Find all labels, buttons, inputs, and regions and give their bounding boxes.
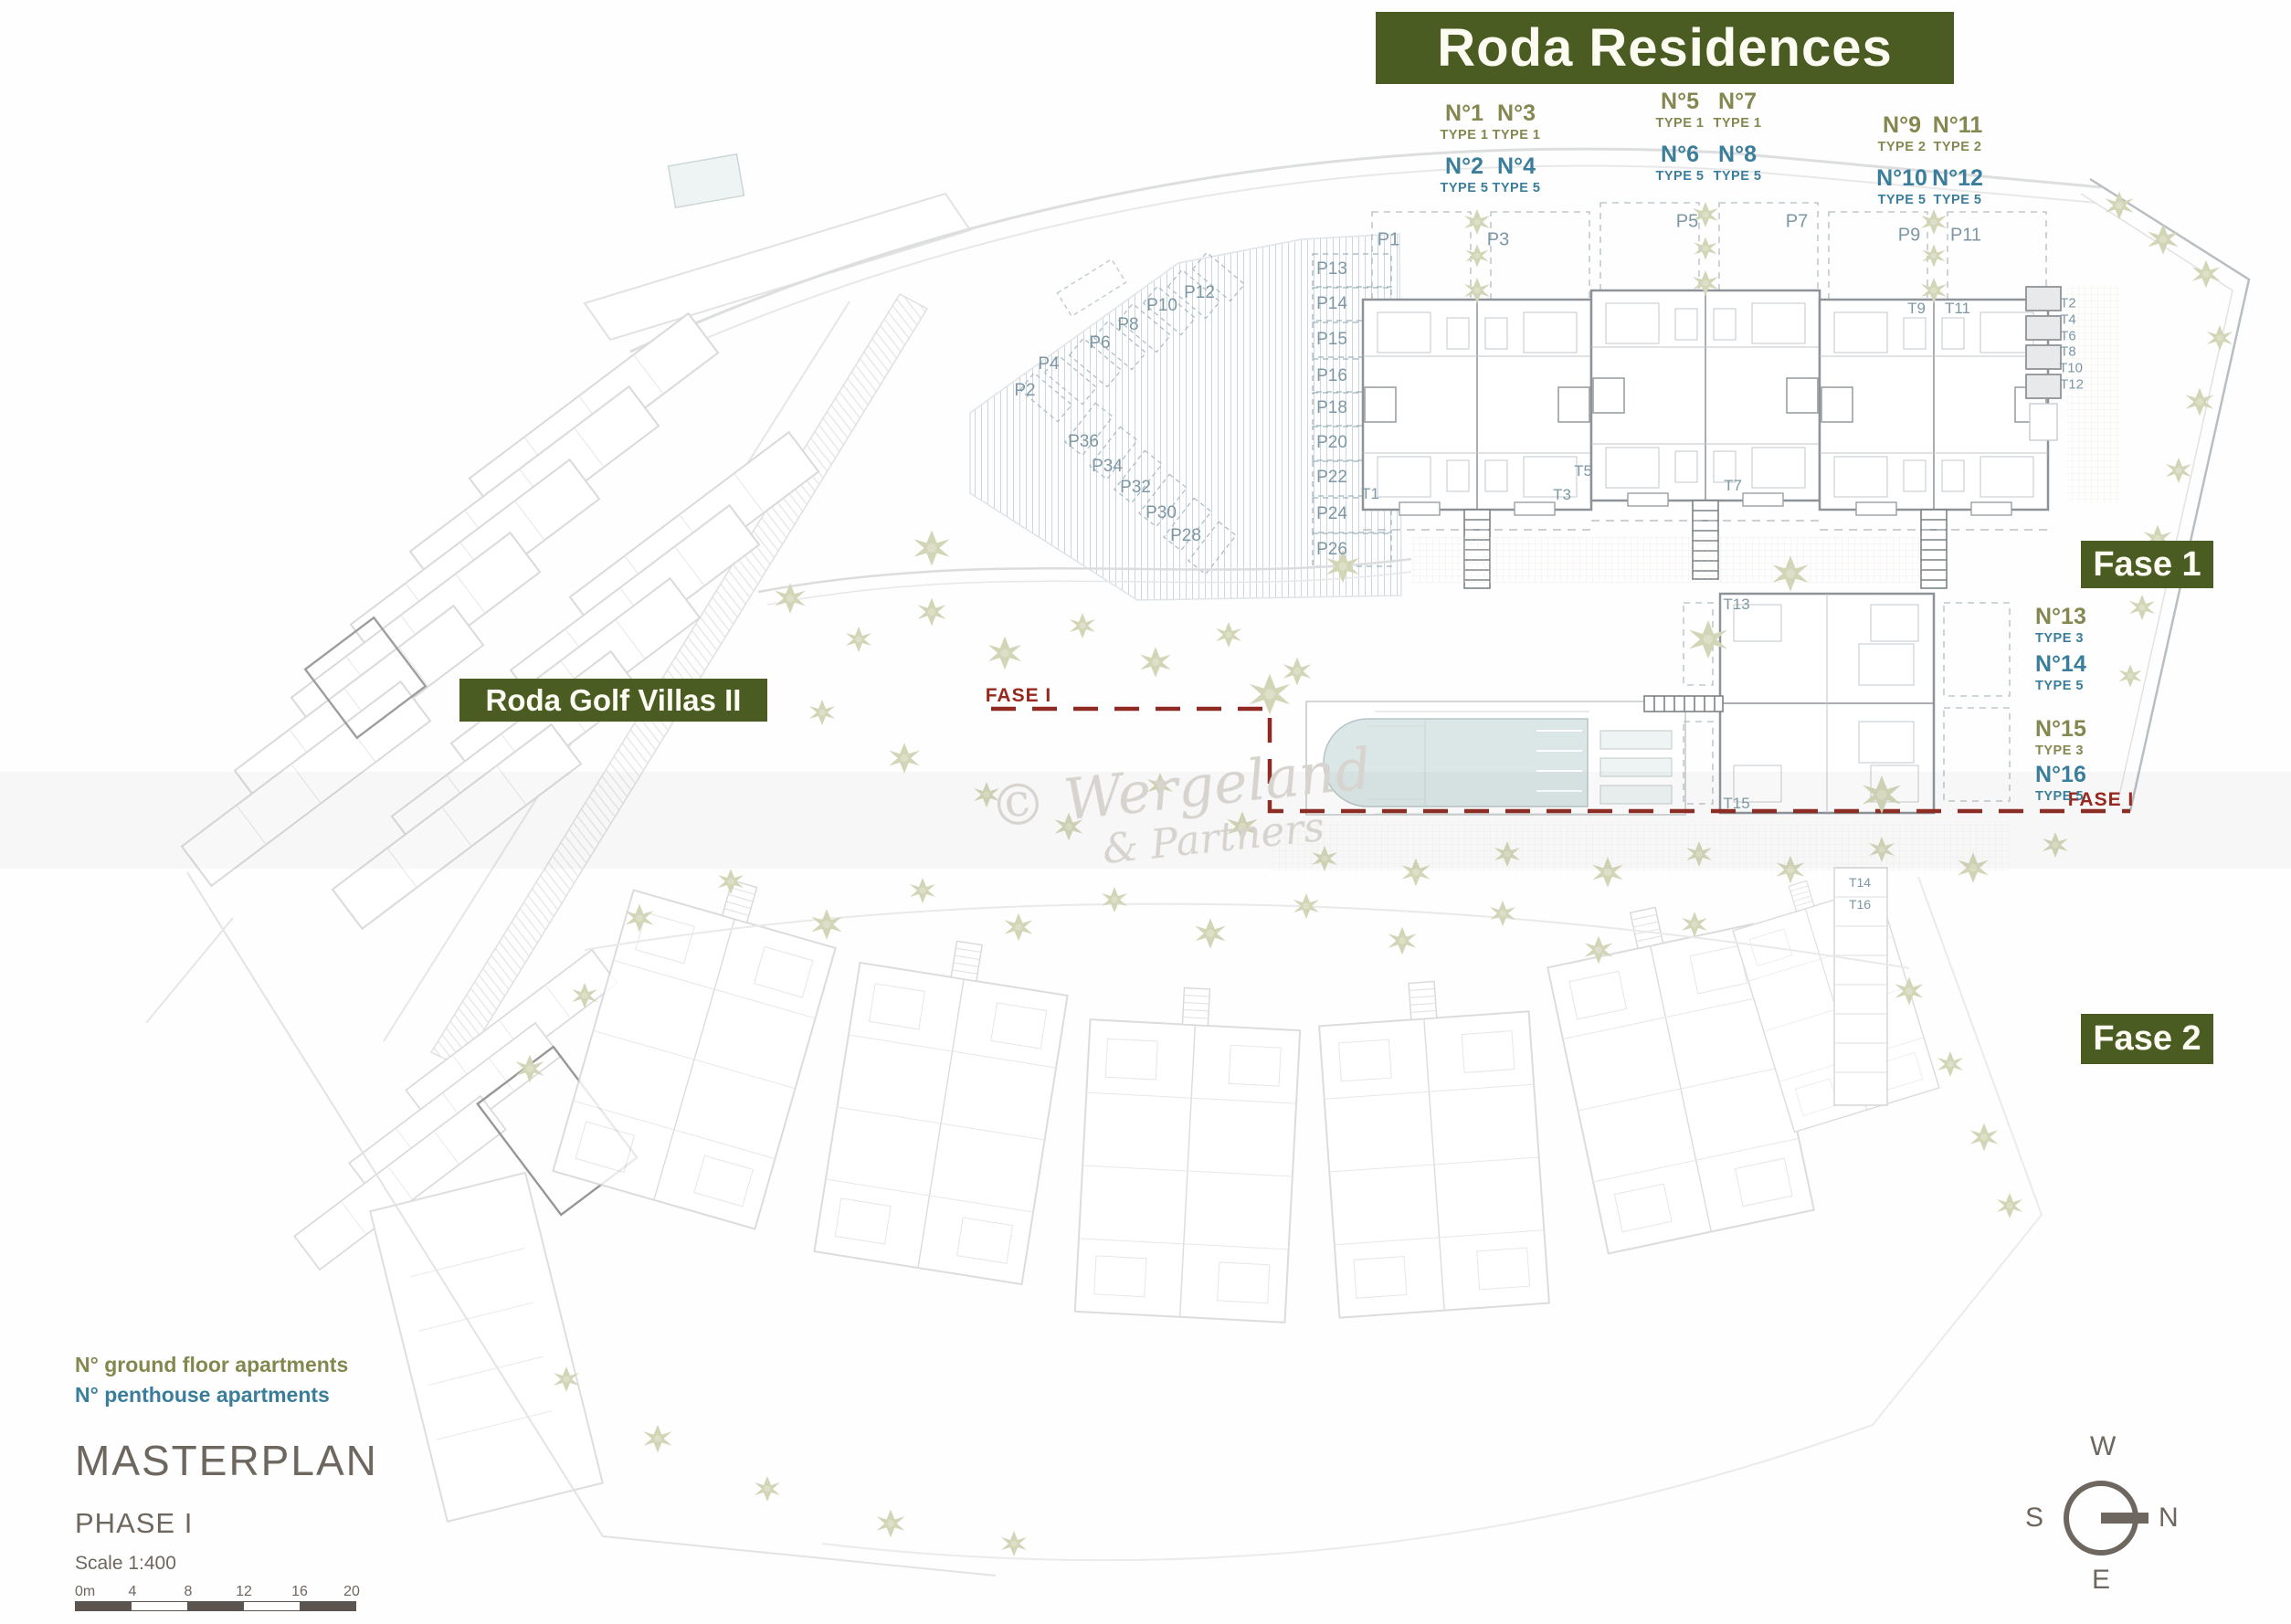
plot-label: P24 (1316, 504, 1347, 524)
legend-penthouse: N° penthouse apartments (75, 1380, 348, 1410)
villas-banner: Roda Golf Villas II (459, 679, 767, 722)
fase-boundary-label-west: FASE I (986, 685, 1052, 707)
plot-label: T14 (1849, 875, 1871, 890)
unit-number: N°3 (1497, 102, 1536, 125)
unit-type: TYPE 5 (1934, 194, 1982, 207)
plot-label: P4 (1038, 354, 1059, 374)
scan-shade-band (0, 772, 2291, 869)
plot-label: T15 (1723, 795, 1749, 813)
unit-number: N°4 (1497, 155, 1536, 178)
plot-label: T3 (1553, 486, 1571, 504)
unit-label-8: N°8TYPE 5 (1714, 143, 1762, 184)
plot-label: P5 (1676, 212, 1698, 233)
masterplan-scale: Scale 1:400 (75, 1553, 378, 1575)
unit-label-2: N°2TYPE 5 (1441, 155, 1489, 195)
plot-label: P18 (1316, 398, 1347, 418)
plot-label: P34 (1092, 457, 1123, 477)
plot-label: P28 (1170, 526, 1201, 546)
compass: W N E S (2014, 1439, 2197, 1603)
compass-e: E (2092, 1565, 2110, 1596)
unit-type: TYPE 5 (1878, 194, 1927, 207)
masterplan-phase: PHASE I (75, 1507, 378, 1540)
unit-type: TYPE 2 (1934, 141, 1982, 154)
plot-label: T2 (2060, 296, 2076, 311)
unit-label-7: N°7TYPE 1 (1714, 90, 1762, 131)
scale-tick: 4 (129, 1584, 137, 1600)
plot-label: T8 (2060, 344, 2076, 360)
plot-label: P22 (1316, 468, 1347, 488)
plot-label: P30 (1145, 503, 1177, 523)
plot-label: P26 (1316, 540, 1347, 560)
unit-label-5: N°5TYPE 1 (1656, 90, 1705, 131)
unit-type: TYPE 1 (1493, 129, 1541, 142)
unit-type: TYPE 5 (2035, 790, 2084, 804)
unit-label-13: N°13TYPE 3 (2035, 606, 2086, 646)
plot-label: T10 (2059, 361, 2083, 376)
plot-label: T13 (1723, 596, 1749, 614)
plot-label: T9 (1907, 300, 1926, 318)
legend-ground-floor: N° ground floor apartments (75, 1350, 348, 1380)
plot-label: P20 (1316, 433, 1347, 453)
compass-s: S (2025, 1503, 2043, 1534)
masterplan-canvas: Roda Residences Roda Golf Villas II Fase… (0, 0, 2291, 1624)
unit-number: N°6 (1661, 143, 1699, 166)
scale-bar: 0m 4 8 12 16 20 (75, 1584, 358, 1611)
unit-number: N°8 (1718, 143, 1757, 166)
unit-number: N°16 (2035, 764, 2086, 786)
unit-number: N°10 (1876, 167, 1927, 190)
unit-label-12: N°12TYPE 5 (1932, 167, 1983, 207)
plot-label: T6 (2060, 329, 2076, 344)
plot-label: T7 (1724, 477, 1742, 495)
scale-tick: 16 (291, 1584, 308, 1600)
unit-type: TYPE 2 (1878, 141, 1927, 154)
plot-label: P1 (1378, 230, 1399, 251)
compass-w: W (2090, 1431, 2116, 1462)
plot-label: T5 (1574, 462, 1592, 480)
unit-label-10: N°10TYPE 5 (1876, 167, 1927, 207)
scale-tick: 20 (343, 1584, 360, 1600)
plot-label: P36 (1068, 432, 1099, 452)
unit-label-15: N°15TYPE 3 (2035, 718, 2086, 758)
unit-label-1: N°1TYPE 1 (1441, 102, 1489, 142)
plot-label: P3 (1487, 230, 1509, 251)
plot-label: P12 (1184, 283, 1215, 303)
unit-number: N°12 (1932, 167, 1983, 190)
plot-label: T4 (2060, 312, 2076, 328)
legend: N° ground floor apartments N° penthouse … (75, 1350, 348, 1411)
plot-label: T16 (1849, 897, 1871, 912)
unit-number: N°2 (1445, 155, 1483, 178)
scale-tick: 0m (75, 1584, 95, 1600)
unit-label-4: N°4TYPE 5 (1493, 155, 1541, 195)
plot-label: P13 (1316, 259, 1347, 279)
plot-label: P32 (1120, 478, 1151, 498)
masterplan-block: MASTERPLAN PHASE I Scale 1:400 0m 4 8 12… (75, 1436, 378, 1611)
unit-type: TYPE 1 (1441, 129, 1489, 142)
unit-type: TYPE 5 (1656, 170, 1705, 184)
compass-n: N (2159, 1503, 2179, 1534)
unit-number: N°1 (1445, 102, 1483, 125)
unit-number: N°15 (2035, 718, 2086, 741)
fase2-badge: Fase 2 (2081, 1014, 2213, 1064)
unit-label-6: N°6TYPE 5 (1656, 143, 1705, 184)
plot-label: P10 (1146, 296, 1177, 316)
scale-tick: 12 (236, 1584, 252, 1600)
fase1-text: Fase 1 (2093, 545, 2201, 585)
plot-label: P7 (1786, 212, 1808, 233)
unit-type: TYPE 3 (2035, 744, 2084, 758)
unit-number: N°13 (2035, 606, 2086, 628)
plot-label: P14 (1316, 294, 1347, 314)
unit-number: N°14 (2035, 653, 2086, 676)
unit-type: TYPE 5 (1441, 182, 1489, 195)
plot-label: P16 (1316, 366, 1347, 386)
title-banner: Roda Residences (1376, 12, 1954, 84)
plot-label: P2 (1014, 381, 1035, 401)
fase2-buildings (553, 855, 2042, 1560)
plot-label: P15 (1316, 330, 1347, 350)
plot-label: P6 (1089, 333, 1110, 353)
unit-type: TYPE 1 (1656, 117, 1705, 131)
unit-number: N°7 (1718, 90, 1757, 113)
unit-label-9: N°9TYPE 2 (1878, 114, 1927, 154)
plot-label: T12 (2060, 377, 2084, 393)
scale-tick: 8 (185, 1584, 193, 1600)
unit-number: N°9 (1883, 114, 1921, 137)
unit-label-16: N°16TYPE 5 (2035, 764, 2086, 804)
masterplan-title: MASTERPLAN (75, 1436, 378, 1485)
scale-bar-segments (75, 1601, 356, 1611)
fase2-text: Fase 2 (2093, 1019, 2201, 1059)
unit-type: TYPE 1 (1714, 117, 1762, 131)
unit-type: TYPE 5 (1493, 182, 1541, 195)
fase1-badge: Fase 1 (2081, 541, 2213, 588)
villas-text: Roda Golf Villas II (486, 683, 742, 718)
unit-number: N°11 (1933, 114, 1982, 137)
title-text: Roda Residences (1437, 17, 1893, 79)
plot-label: T1 (1361, 485, 1379, 503)
unit-number: N°5 (1661, 90, 1699, 113)
unit-type: TYPE 5 (1714, 170, 1762, 184)
unit-type: TYPE 5 (2035, 680, 2084, 693)
plot-label: P11 (1950, 226, 1981, 247)
unit-label-14: N°14TYPE 5 (2035, 653, 2086, 693)
unit-label-11: N°11TYPE 2 (1933, 114, 1982, 154)
unit-type: TYPE 3 (2035, 632, 2084, 646)
plot-label: P8 (1117, 315, 1138, 335)
plot-label: P9 (1898, 226, 1920, 247)
unit-label-3: N°3TYPE 1 (1493, 102, 1541, 142)
plot-label: T11 (1945, 300, 1970, 318)
